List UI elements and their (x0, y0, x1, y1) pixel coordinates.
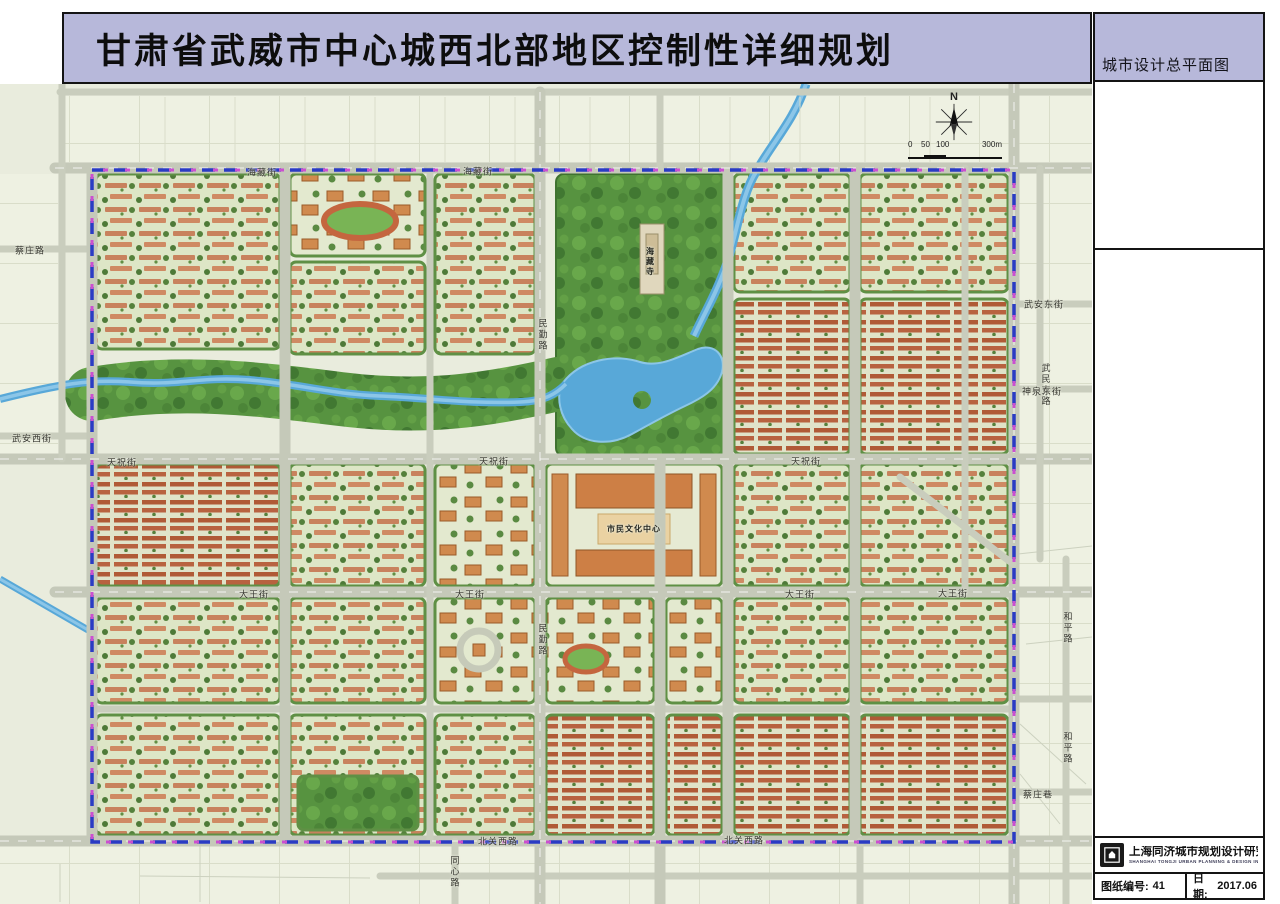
street-label: 海藏街 (463, 165, 493, 178)
street-label: 天祝街 (791, 455, 821, 468)
street-label: 大王街 (938, 587, 968, 600)
street-label: 武安东街 (1024, 298, 1064, 311)
street-label: 和平路 (1062, 612, 1075, 645)
side-panel: 城市设计总平面图 上海同济城市规划设计研究院 SHANGHAI TONGJI U… (1093, 0, 1265, 904)
small-stadium (565, 646, 607, 672)
sheet-id-row: 图纸编号: 41 日期: 2017.06 (1093, 872, 1265, 900)
place-label: 海藏寺 (645, 247, 656, 277)
street-label: 民勤路 (537, 624, 550, 657)
panel-empty-box-1 (1093, 80, 1265, 250)
scale-tick-300m: 300m (982, 140, 1002, 149)
campus-ring-road (460, 631, 498, 669)
street-label: 大王街 (455, 588, 485, 601)
street-label: 蔡庄巷 (1023, 788, 1053, 801)
institute-name: 上海同济城市规划设计研究院 (1129, 846, 1258, 859)
scale-bar: 0 50 100 300m (908, 140, 1002, 159)
map-drawing (0, 84, 1092, 904)
master-plan-map (0, 84, 1092, 904)
street-label: 同心路 (449, 856, 462, 889)
street-label: 武安西街 (12, 432, 52, 445)
street-label: 和平路 (1062, 732, 1075, 765)
drawing-no-value: 41 (1153, 880, 1165, 892)
planning-sheet: 甘肃省武威市中心城西北部地区控制性详细规划 (0, 0, 1280, 904)
drawing-no-label: 图纸编号: (1101, 878, 1149, 894)
street-label: 天祝街 (479, 455, 509, 468)
north-arrow: N (930, 92, 978, 147)
north-label: N (930, 92, 978, 102)
drawing-name: 城市设计总平面图 (1102, 54, 1230, 75)
institute-name-en: SHANGHAI TONGJI URBAN PLANNING & DESIGN … (1129, 859, 1258, 864)
drawing-name-box: 城市设计总平面图 (1093, 12, 1265, 82)
panel-empty-box-2 (1093, 248, 1265, 838)
street-label: 神泉东街 (1022, 385, 1062, 398)
sheet-title: 甘肃省武威市中心城西北部地区控制性详细规划 (96, 23, 894, 74)
date-value: 2017.06 (1217, 880, 1257, 892)
date-label: 日期: (1193, 870, 1213, 902)
street-label: 大王街 (785, 588, 815, 601)
institute-block: 上海同济城市规划设计研究院 SHANGHAI TONGJI URBAN PLAN… (1093, 836, 1265, 874)
sports-track (324, 204, 396, 238)
street-label: 蔡庄路 (15, 244, 45, 257)
street-label: 北关西路 (724, 834, 764, 847)
scale-tick-50: 50 (921, 140, 930, 149)
street-label: 海藏街 (247, 166, 277, 179)
scale-bar-line (908, 151, 1002, 159)
compass-rose-icon (932, 102, 976, 142)
street-label: 大王街 (239, 588, 269, 601)
institute-logo (1100, 843, 1124, 867)
street-label: 北关西路 (478, 835, 518, 848)
scale-tick-0: 0 (908, 140, 912, 149)
street-label: 民勤路 (537, 319, 550, 352)
place-label: 市民文化中心 (607, 524, 661, 535)
scale-tick-100: 100 (936, 140, 949, 149)
street-label: 天祝街 (107, 456, 137, 469)
title-bar: 甘肃省武威市中心城西北部地区控制性详细规划 (62, 12, 1092, 84)
